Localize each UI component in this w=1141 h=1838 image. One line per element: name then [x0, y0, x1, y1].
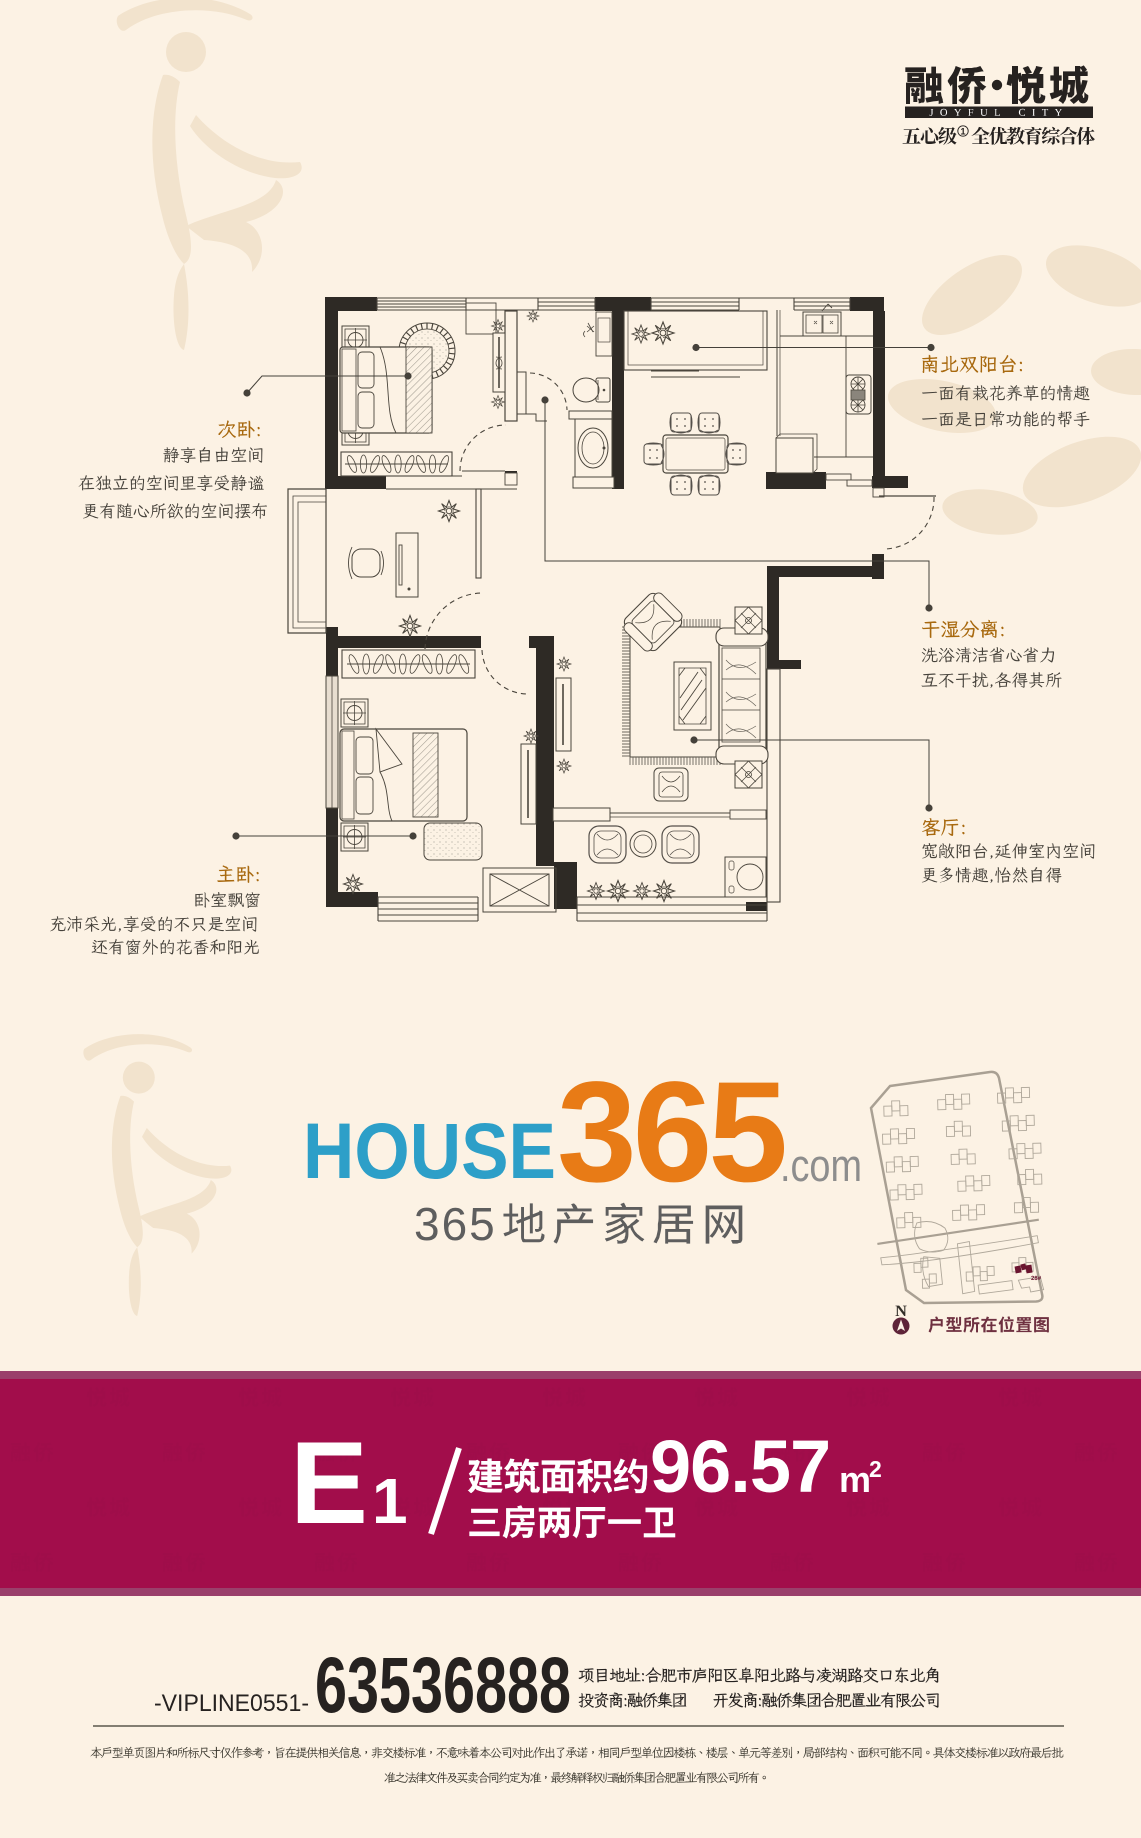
svg-text:1: 1 — [960, 127, 965, 137]
svg-text:.com: .com — [780, 1140, 862, 1191]
svg-text:HOUSE: HOUSE — [303, 1106, 556, 1195]
svg-text:E: E — [290, 1417, 368, 1548]
svg-text:365: 365 — [414, 1198, 497, 1250]
svg-text:1: 1 — [372, 1465, 408, 1537]
svg-text:365: 365 — [557, 1053, 784, 1212]
svg-text:m: m — [839, 1459, 871, 1500]
svg-text:96.57: 96.57 — [650, 1425, 830, 1508]
svg-text:-VIPLINE0551-: -VIPLINE0551- — [154, 1690, 309, 1717]
svg-text:2: 2 — [869, 1456, 882, 1482]
svg-text:63536888: 63536888 — [315, 1640, 571, 1729]
